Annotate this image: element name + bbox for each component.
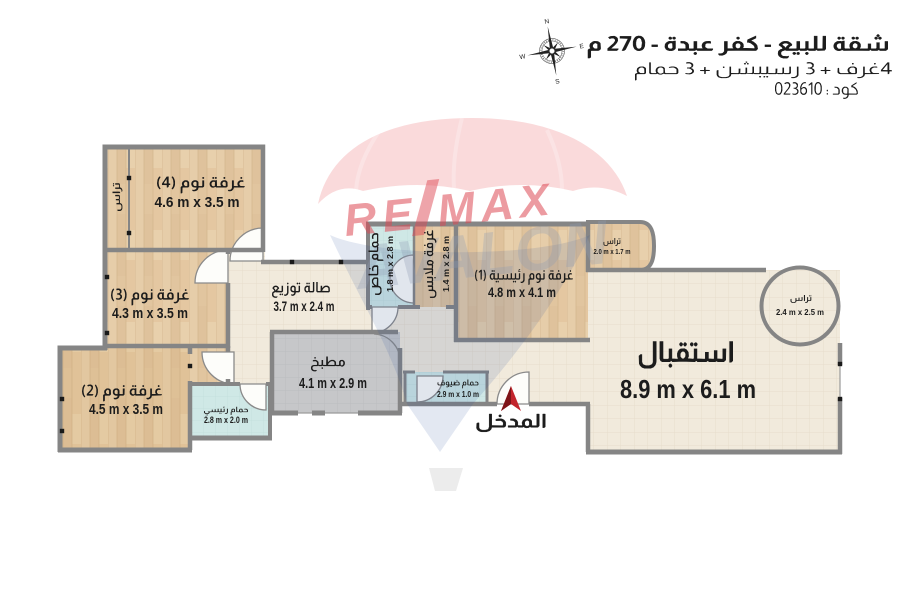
svg-text:2.9 m x 1.0 m: 2.9 m x 1.0 m [437, 390, 479, 399]
svg-text:4.1 m x 2.9 m: 4.1 m x 2.9 m [299, 376, 367, 392]
svg-text:S: S [555, 78, 561, 86]
svg-text:4.6 m x 3.5 m: 4.6 m x 3.5 m [155, 194, 240, 211]
svg-text:2.8 m x 2.0 m: 2.8 m x 2.0 m [204, 415, 248, 425]
svg-text:1.4 m x 2.8 m: 1.4 m x 2.8 m [442, 236, 451, 292]
svg-text:2.0 m x 1.7 m: 2.0 m x 1.7 m [594, 247, 631, 256]
svg-text:E: E [579, 43, 585, 51]
svg-text:4.8 m x 4.1 m: 4.8 m x 4.1 m [488, 284, 556, 300]
svg-text:3.7 m x 2.4 m: 3.7 m x 2.4 m [274, 298, 335, 314]
svg-text:1.8 m x 2.8 m: 1.8 m x 2.8 m [386, 236, 395, 292]
svg-text:8.9 m x 6.1 m: 8.9 m x 6.1 m [620, 374, 756, 404]
svg-text:4.3 m x 3.5 m: 4.3 m x 3.5 m [112, 306, 188, 322]
svg-text:2.4 m x 2.5 m: 2.4 m x 2.5 m [776, 308, 824, 317]
svg-text:N: N [544, 18, 550, 26]
svg-text:4.5 m x 3.5 m: 4.5 m x 3.5 m [89, 402, 163, 418]
svg-text:W: W [519, 53, 527, 61]
